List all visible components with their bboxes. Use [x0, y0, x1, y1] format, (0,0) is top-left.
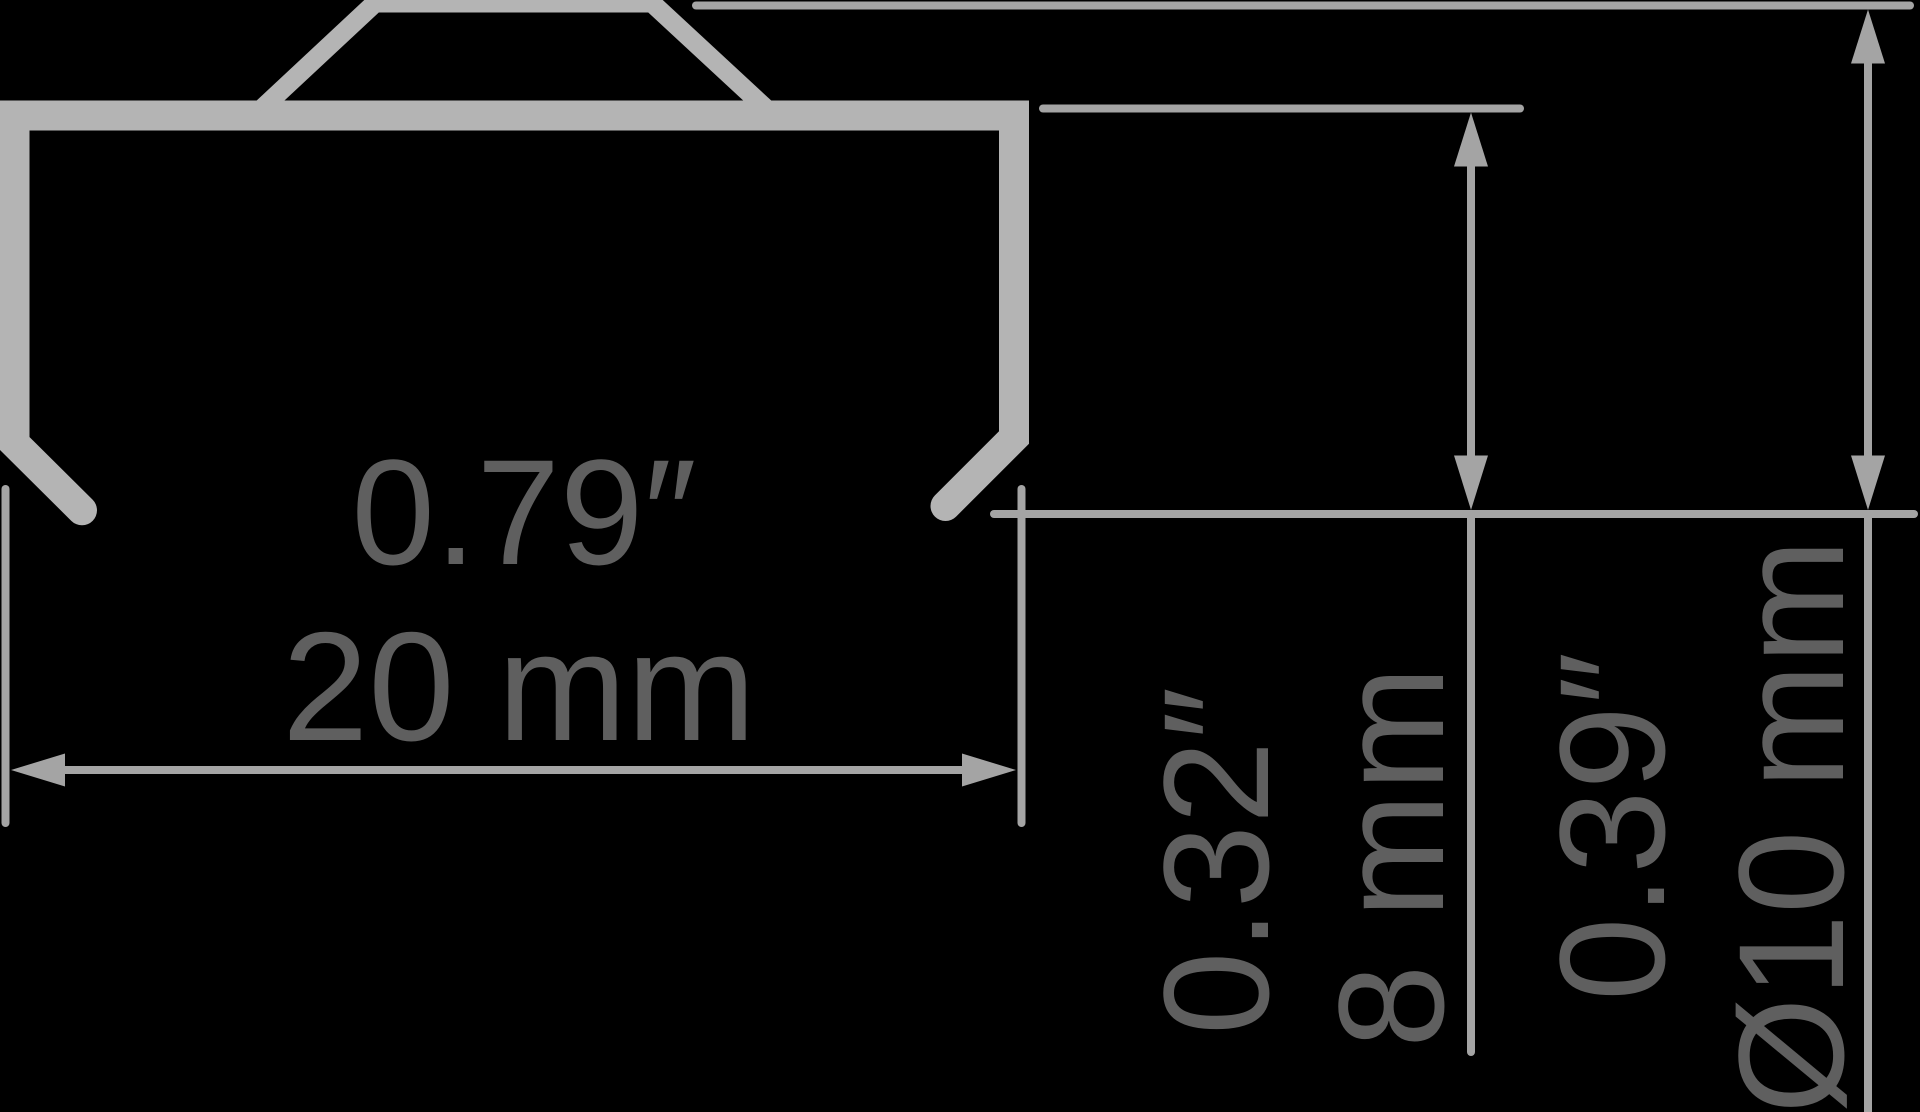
svg-text:20 mm: 20 mm	[282, 600, 756, 773]
svg-text:0.79″: 0.79″	[351, 428, 696, 596]
svg-text:0.32″: 0.32″	[1132, 686, 1300, 1035]
svg-text:Ø10 mm: Ø10 mm	[1707, 539, 1875, 1112]
svg-text:0.39″: 0.39″	[1528, 651, 1696, 1001]
svg-text:8 mm: 8 mm	[1307, 664, 1475, 1048]
